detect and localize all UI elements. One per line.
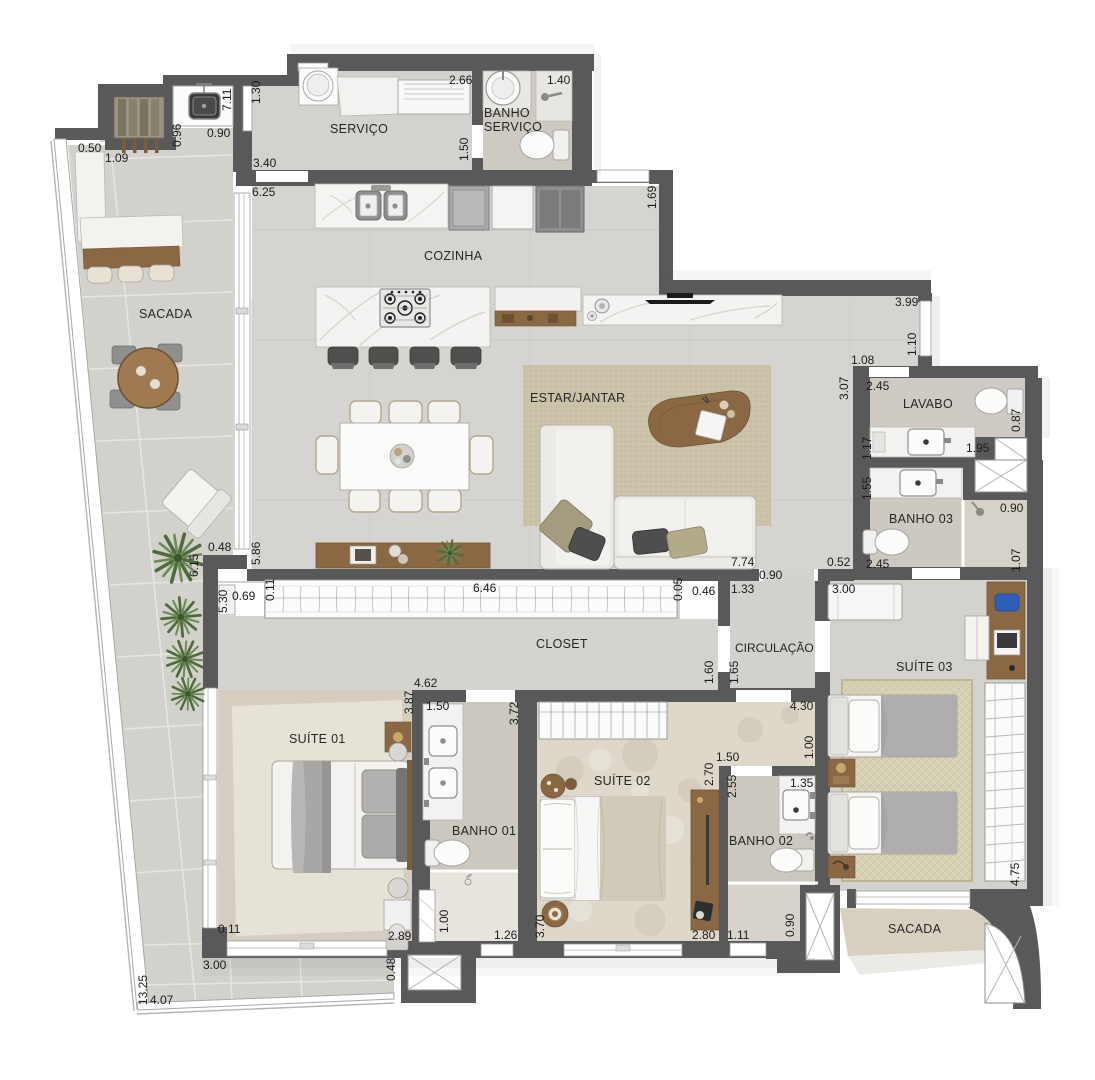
- svg-text:2.55: 2.55: [725, 774, 739, 798]
- svg-text:1.55: 1.55: [860, 476, 874, 500]
- svg-text:3.00: 3.00: [203, 958, 227, 972]
- svg-text:0.05: 0.05: [671, 577, 685, 601]
- svg-text:3.70: 3.70: [533, 914, 547, 938]
- svg-text:13.25: 13.25: [136, 975, 150, 1005]
- svg-text:2.80: 2.80: [692, 928, 716, 942]
- svg-text:1.26: 1.26: [494, 928, 518, 942]
- svg-text:ESTAR/JANTAR: ESTAR/JANTAR: [530, 391, 626, 405]
- svg-text:SUÍTE 03: SUÍTE 03: [896, 659, 953, 674]
- svg-text:5.30: 5.30: [216, 589, 230, 613]
- svg-text:7.74: 7.74: [731, 555, 755, 569]
- svg-text:0.52: 0.52: [827, 555, 851, 569]
- svg-text:2.70: 2.70: [702, 762, 716, 786]
- svg-text:1.00: 1.00: [437, 909, 451, 933]
- svg-text:0.90: 0.90: [1000, 501, 1024, 515]
- svg-text:0.48: 0.48: [208, 540, 232, 554]
- svg-text:0.48: 0.48: [384, 957, 398, 981]
- svg-text:2.66: 2.66: [449, 73, 473, 87]
- svg-text:0.46: 0.46: [692, 584, 716, 598]
- svg-text:1.69: 1.69: [645, 185, 659, 209]
- svg-text:1.35: 1.35: [790, 776, 814, 790]
- svg-text:7.11: 7.11: [220, 88, 234, 111]
- svg-text:1.40: 1.40: [547, 73, 571, 87]
- svg-text:0.50: 0.50: [78, 141, 102, 155]
- svg-text:SERVIÇO: SERVIÇO: [484, 120, 542, 134]
- svg-text:BANHO: BANHO: [484, 106, 530, 120]
- svg-text:4.62: 4.62: [414, 676, 438, 690]
- svg-text:1.65: 1.65: [727, 660, 741, 684]
- svg-text:1.11: 1.11: [727, 928, 750, 942]
- svg-text:0.90: 0.90: [207, 126, 231, 140]
- svg-text:4.30: 4.30: [790, 699, 814, 713]
- svg-text:6.25: 6.25: [252, 185, 276, 199]
- svg-text:1.30: 1.30: [249, 80, 263, 104]
- svg-text:4.75: 4.75: [1008, 862, 1022, 886]
- svg-text:6.15: 6.15: [187, 553, 201, 577]
- svg-text:1.10: 1.10: [905, 332, 919, 356]
- svg-text:SUÍTE 01: SUÍTE 01: [289, 731, 346, 746]
- svg-text:CLOSET: CLOSET: [536, 637, 588, 651]
- svg-text:0.90: 0.90: [783, 913, 797, 937]
- svg-text:6.46: 6.46: [473, 581, 497, 595]
- svg-text:LAVABO: LAVABO: [903, 397, 953, 411]
- svg-text:0.69: 0.69: [232, 589, 256, 603]
- svg-text:1.95: 1.95: [966, 441, 990, 455]
- svg-text:5.86: 5.86: [249, 541, 263, 565]
- svg-text:2.45: 2.45: [866, 379, 890, 393]
- svg-text:COZINHA: COZINHA: [424, 249, 483, 263]
- svg-text:3.99: 3.99: [895, 295, 919, 309]
- svg-text:3.87: 3.87: [402, 690, 416, 714]
- svg-text:1.07: 1.07: [1009, 548, 1023, 572]
- svg-text:4.07: 4.07: [150, 993, 174, 1007]
- svg-text:1.60: 1.60: [702, 660, 716, 684]
- svg-text:SACADA: SACADA: [888, 922, 942, 936]
- svg-text:1.17: 1.17: [860, 436, 874, 460]
- svg-text:SACADA: SACADA: [139, 307, 193, 321]
- svg-text:BANHO 01: BANHO 01: [452, 824, 516, 838]
- svg-text:3.40: 3.40: [253, 156, 277, 170]
- svg-text:2.89: 2.89: [388, 929, 412, 943]
- svg-text:3.72: 3.72: [507, 701, 521, 725]
- svg-text:0.11: 0.11: [263, 578, 277, 601]
- svg-text:1.50: 1.50: [426, 699, 450, 713]
- svg-text:1.00: 1.00: [802, 735, 816, 759]
- svg-text:SUÍTE 02: SUÍTE 02: [594, 773, 651, 788]
- svg-text:CIRCULAÇÃO: CIRCULAÇÃO: [735, 641, 814, 655]
- svg-text:3.00: 3.00: [832, 582, 856, 596]
- svg-text:0.96: 0.96: [170, 123, 184, 147]
- svg-text:1.50: 1.50: [716, 750, 740, 764]
- svg-text:BANHO 03: BANHO 03: [889, 512, 953, 526]
- svg-text:0.90: 0.90: [759, 568, 783, 582]
- svg-text:1.08: 1.08: [851, 353, 875, 367]
- svg-text:0.11: 0.11: [218, 922, 241, 936]
- svg-text:1.09: 1.09: [105, 151, 129, 165]
- svg-text:SERVIÇO: SERVIÇO: [330, 122, 388, 136]
- svg-text:2.45: 2.45: [866, 557, 890, 571]
- svg-text:1.50: 1.50: [457, 137, 471, 161]
- svg-text:0.87: 0.87: [1009, 408, 1023, 432]
- svg-text:1.33: 1.33: [731, 582, 755, 596]
- svg-text:BANHO 02: BANHO 02: [729, 834, 793, 848]
- svg-text:3.07: 3.07: [837, 376, 851, 400]
